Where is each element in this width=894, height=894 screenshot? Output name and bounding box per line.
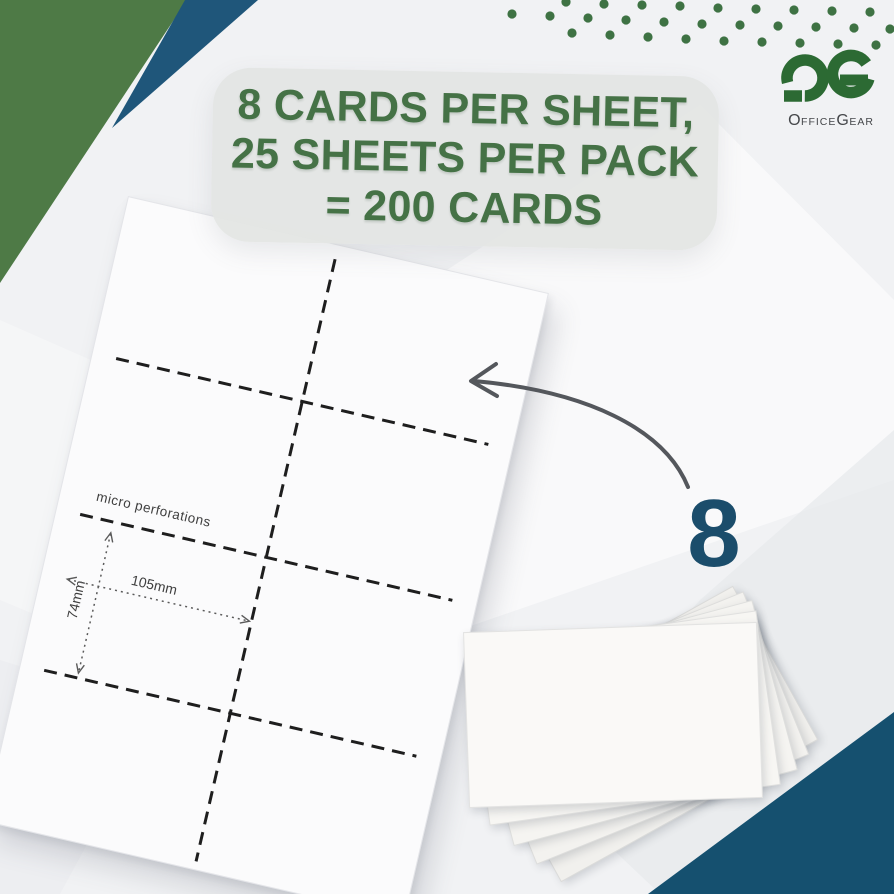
perforation-line-horizontal-3 (44, 670, 416, 756)
card (463, 622, 763, 808)
brand-logo: O FFICE G EAR (768, 44, 894, 130)
logo-wordmark: O FFICE G EAR (788, 112, 874, 130)
headline-line-2: 25 SHEETS PER PACK (230, 130, 699, 188)
perforation-line-horizontal-1 (116, 358, 488, 444)
wordmark-ffice: FFICE (801, 116, 836, 128)
height-dimension: 74mm (52, 527, 115, 674)
headline-line-3: = 200 CARDS (325, 181, 603, 235)
logo-mark (768, 44, 894, 110)
card-width-label: 105mm (130, 572, 179, 598)
perforation-line-vertical (196, 259, 335, 861)
wordmark-ear: EAR (849, 116, 874, 128)
wordmark-g: G (836, 112, 849, 130)
headline-panel: 8 CARDS PER SHEET, 25 SHEETS PER PACK = … (210, 67, 719, 251)
micro-perforations-label: micro perforations (95, 489, 212, 530)
headline-line-1: 8 CARDS PER SHEET, (237, 81, 695, 139)
card-count-callout: 8 (674, 486, 754, 582)
width-dimension: 105mm (66, 558, 254, 625)
card-height-label: 74mm (64, 579, 88, 621)
wordmark-o: O (788, 112, 801, 130)
logo-g-glyph (828, 51, 874, 97)
promo-image: micro perforations 74mm 105mm (0, 0, 894, 894)
dot-pattern (507, 0, 894, 50)
